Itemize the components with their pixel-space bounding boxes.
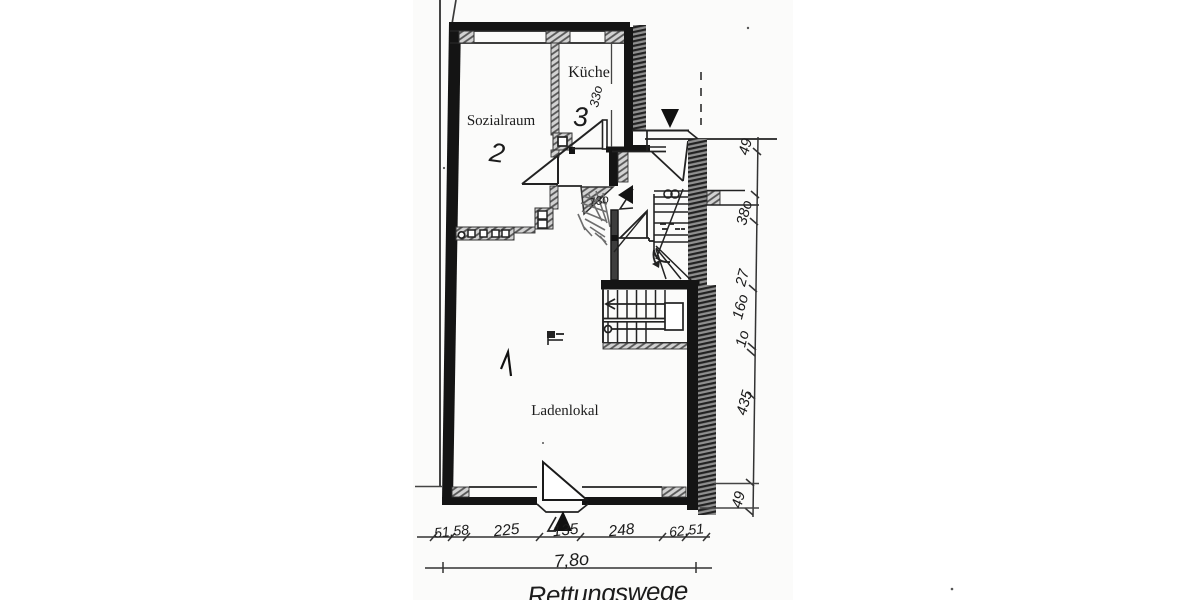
svg-text:3: 3: [573, 102, 588, 132]
svg-text:225: 225: [492, 521, 521, 541]
svg-text:7,8o: 7,8o: [553, 549, 590, 572]
svg-text:248: 248: [607, 521, 636, 541]
svg-text:135: 135: [552, 521, 580, 541]
svg-text:Küche: Küche: [568, 64, 610, 81]
svg-text:Ladenlokal: Ladenlokal: [531, 403, 598, 419]
svg-text:Sozialraum: Sozialraum: [467, 113, 536, 129]
